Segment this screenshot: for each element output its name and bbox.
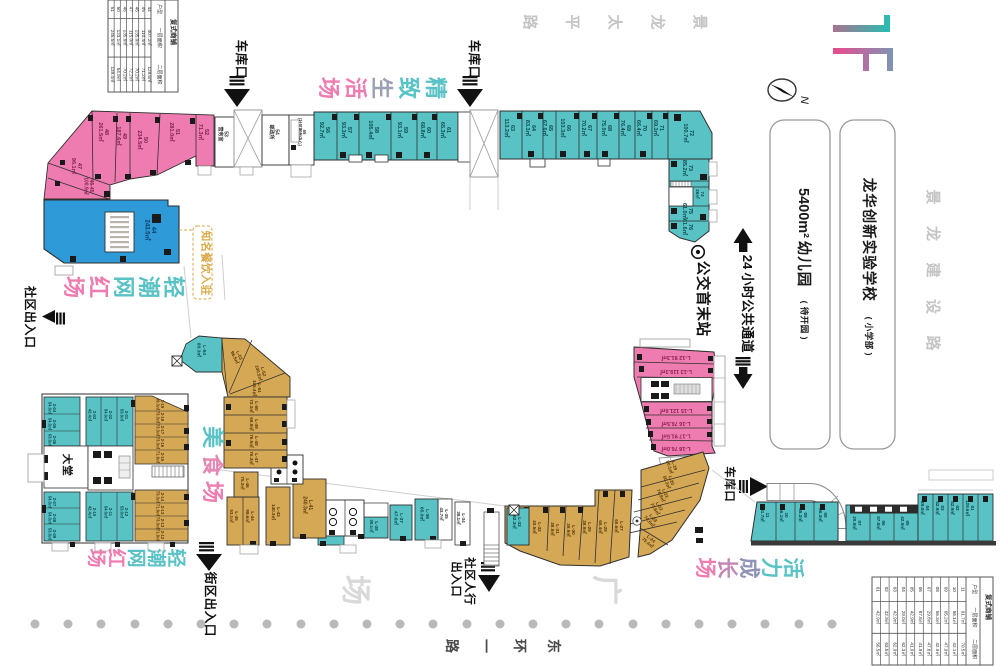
svg-text:场: 场	[85, 548, 107, 567]
svg-text:场: 场	[200, 481, 225, 503]
svg-text:行: 行	[463, 592, 477, 605]
svg-text:设: 设	[924, 299, 941, 314]
svg-text:62.3㎡: 62.3㎡	[901, 642, 907, 656]
svg-text:41.9㎡: 41.9㎡	[918, 642, 924, 656]
svg-text:42.9㎡: 42.9㎡	[875, 611, 881, 625]
svg-text:29.8㎡: 29.8㎡	[927, 611, 933, 625]
svg-text:70.2㎡: 70.2㎡	[122, 68, 128, 82]
svg-text:园: 园	[800, 325, 810, 334]
svg-text:网: 网	[125, 548, 146, 567]
svg-text:户型: 户型	[971, 584, 978, 594]
svg-text:123.1㎡: 123.1㎡	[116, 30, 122, 46]
svg-text:47.9㎡: 47.9㎡	[944, 642, 950, 656]
svg-text:54.9㎡: 54.9㎡	[116, 68, 122, 82]
svg-text:待: 待	[800, 306, 810, 316]
svg-text:区: 区	[203, 585, 217, 598]
svg-text:407.2㎡: 407.2㎡	[147, 30, 153, 46]
svg-text:29.0㎡: 29.0㎡	[901, 611, 907, 625]
svg-text:L-12 91.3㎡: L-12 91.3㎡	[661, 354, 691, 362]
svg-text:二层面积: 二层面积	[971, 639, 978, 659]
svg-text:社: 社	[463, 556, 477, 569]
svg-text:42.1㎡: 42.1㎡	[952, 642, 958, 656]
svg-text:07: 07	[927, 587, 932, 593]
svg-text:社: 社	[23, 285, 38, 298]
svg-text:11: 11	[961, 587, 966, 592]
svg-text:红: 红	[105, 548, 128, 567]
svg-text:街: 街	[203, 571, 218, 585]
svg-text:验: 验	[860, 255, 878, 270]
svg-text:): )	[800, 337, 810, 340]
svg-text:08: 08	[935, 587, 940, 593]
svg-text:龙: 龙	[924, 225, 942, 241]
svg-text:42.9㎡: 42.9㎡	[892, 611, 898, 625]
svg-text:区: 区	[463, 569, 476, 581]
svg-text:50: 50	[116, 7, 121, 13]
svg-text:新: 新	[860, 224, 878, 239]
svg-text:建: 建	[924, 262, 942, 278]
svg-text:47: 47	[129, 7, 134, 13]
svg-text:路: 路	[521, 14, 539, 30]
svg-text:口: 口	[450, 585, 463, 597]
svg-text:48: 48	[122, 7, 127, 13]
svg-text:实: 实	[860, 240, 878, 255]
svg-text:创: 创	[860, 208, 878, 224]
svg-text:入: 入	[23, 323, 37, 335]
svg-text:潮: 潮	[136, 276, 161, 298]
svg-text:45: 45	[141, 7, 146, 13]
svg-text:饮: 饮	[200, 262, 213, 274]
svg-text:美: 美	[200, 426, 225, 449]
svg-text:L-18 76.0㎡: L-18 76.0㎡	[661, 445, 691, 453]
svg-text:公: 公	[740, 299, 755, 312]
svg-text:幼: 幼	[795, 241, 813, 256]
svg-text:园: 园	[795, 272, 812, 287]
svg-text:驻: 驻	[200, 285, 213, 296]
svg-text:场: 场	[693, 558, 716, 579]
svg-text:44: 44	[147, 7, 152, 13]
svg-text:87.8㎡: 87.8㎡	[918, 611, 924, 625]
svg-text:复式商铺: 复式商铺	[170, 18, 179, 46]
svg-text:41.9㎡: 41.9㎡	[909, 642, 915, 656]
svg-text:生: 生	[369, 77, 394, 99]
svg-text:轻: 轻	[161, 276, 186, 298]
svg-text:平: 平	[564, 14, 581, 29]
svg-text:东: 东	[546, 639, 562, 653]
svg-text:129.6㎡: 129.6㎡	[147, 66, 153, 82]
svg-text:致: 致	[396, 77, 421, 100]
svg-text:入: 入	[203, 611, 217, 624]
svg-text:精: 精	[423, 77, 448, 99]
svg-text:人: 人	[463, 581, 477, 593]
svg-text:大: 大	[61, 454, 74, 465]
svg-text:一层面积: 一层面积	[971, 607, 978, 627]
svg-text:共: 共	[740, 313, 755, 326]
svg-text:小: 小	[740, 272, 755, 285]
svg-text:通: 通	[740, 326, 755, 339]
svg-text:出: 出	[450, 561, 464, 573]
svg-text:库: 库	[467, 53, 482, 66]
svg-text:(: (	[864, 317, 874, 320]
svg-text:轻: 轻	[165, 548, 188, 567]
svg-text:24: 24	[740, 255, 755, 270]
svg-text:网: 网	[111, 276, 136, 298]
svg-text:42.9㎡: 42.9㎡	[884, 611, 890, 625]
svg-text:91.7㎡: 91.7㎡	[961, 611, 967, 625]
svg-text:72.2㎡: 72.2㎡	[129, 68, 135, 82]
svg-text:L-13 119.3㎡: L-13 119.3㎡	[660, 368, 692, 376]
svg-text:时: 时	[740, 286, 755, 299]
svg-text:56.1㎡: 56.1㎡	[952, 611, 958, 625]
svg-text:太: 太	[606, 14, 624, 30]
svg-text:公: 公	[694, 261, 711, 276]
svg-text:场: 场	[338, 575, 371, 605]
svg-text:115.0㎡: 115.0㎡	[129, 30, 135, 46]
svg-text:知: 知	[200, 231, 213, 242]
svg-text:N: N	[798, 96, 810, 104]
svg-text:末: 末	[694, 306, 712, 321]
svg-text:小: 小	[864, 322, 874, 332]
svg-text:一: 一	[478, 639, 494, 653]
svg-text:46: 46	[135, 7, 140, 13]
svg-text:首: 首	[694, 291, 712, 306]
svg-text:01: 01	[875, 587, 880, 593]
svg-text:儿: 儿	[795, 255, 812, 271]
svg-text:校: 校	[860, 286, 878, 301]
svg-text:学: 学	[860, 271, 878, 286]
svg-text:龙: 龙	[860, 177, 878, 193]
svg-text:广: 广	[589, 575, 622, 605]
svg-text:出: 出	[23, 311, 38, 323]
svg-text:车: 车	[723, 466, 737, 478]
svg-text:名: 名	[200, 242, 213, 253]
svg-text:47.8㎡: 47.8㎡	[927, 642, 933, 656]
svg-text:63.5㎡: 63.5㎡	[884, 642, 890, 656]
svg-text:环: 环	[512, 639, 528, 653]
svg-text:139.4㎡: 139.4㎡	[110, 66, 116, 82]
svg-text:部: 部	[864, 341, 874, 350]
svg-text:10: 10	[952, 587, 957, 593]
svg-text:华: 华	[860, 193, 878, 208]
svg-text:L-16 76.5㎡: L-16 76.5㎡	[661, 420, 691, 428]
svg-text:道: 道	[740, 339, 755, 352]
svg-text:65.2㎡: 65.2㎡	[944, 611, 950, 625]
svg-text:活: 活	[781, 558, 804, 579]
svg-text:学: 学	[864, 332, 874, 341]
svg-text:135.8㎡: 135.8㎡	[122, 30, 128, 46]
svg-text:02: 02	[884, 587, 889, 593]
svg-text:库: 库	[234, 53, 249, 66]
svg-text:5400m²: 5400m²	[795, 188, 811, 238]
svg-text:堂: 堂	[61, 465, 74, 476]
svg-text:09: 09	[944, 587, 949, 593]
svg-text:车: 车	[467, 40, 482, 53]
svg-text:56.5㎡: 56.5㎡	[875, 642, 881, 656]
svg-text:交: 交	[694, 276, 712, 291]
svg-text:场: 场	[316, 77, 341, 99]
svg-text:餐: 餐	[200, 251, 213, 263]
svg-text:42.9㎡: 42.9㎡	[909, 611, 915, 625]
svg-text:51: 51	[110, 7, 115, 13]
svg-text:71.2㎡: 71.2㎡	[141, 68, 147, 82]
svg-text:二层面积: 二层面积	[156, 65, 163, 85]
svg-text:135.0㎡: 135.0㎡	[135, 30, 141, 46]
svg-text:红: 红	[86, 276, 111, 298]
svg-text:复式商铺: 复式商铺	[985, 593, 994, 621]
svg-text:46-45100.9㎡: 46-45100.9㎡	[83, 177, 95, 195]
svg-text:口: 口	[23, 336, 37, 348]
svg-text:户型: 户型	[156, 4, 163, 14]
svg-text:成: 成	[737, 558, 761, 579]
svg-text:70.5㎡: 70.5㎡	[961, 642, 967, 656]
svg-text:入: 入	[450, 573, 463, 585]
svg-text:潮: 潮	[145, 548, 167, 567]
svg-text:): )	[864, 353, 874, 356]
svg-text:110.4㎡: 110.4㎡	[141, 30, 147, 46]
svg-text:245.5㎡: 245.5㎡	[110, 30, 116, 46]
svg-text:口: 口	[203, 624, 217, 637]
svg-text:出: 出	[203, 598, 218, 611]
svg-text:05: 05	[909, 587, 914, 593]
svg-text:L-15 121.6㎡: L-15 121.6㎡	[659, 407, 692, 415]
svg-text:站: 站	[694, 322, 712, 337]
svg-text:(: (	[800, 301, 810, 304]
svg-text:L-17 91.5㎡: L-17 91.5㎡	[661, 433, 691, 441]
svg-text:路: 路	[924, 335, 942, 351]
svg-text:62.9㎡: 62.9㎡	[892, 642, 898, 656]
svg-text:入: 入	[200, 274, 212, 285]
svg-text:口: 口	[723, 490, 736, 502]
svg-text:车: 车	[234, 40, 249, 53]
svg-text:力: 力	[759, 558, 782, 579]
svg-text:龙: 龙	[649, 13, 667, 29]
svg-text:区: 区	[23, 298, 37, 310]
svg-text:场: 场	[61, 276, 86, 298]
svg-text:开: 开	[800, 316, 810, 325]
svg-text:景: 景	[691, 14, 709, 29]
svg-text:70.2㎡: 70.2㎡	[135, 68, 141, 82]
svg-text:03: 03	[892, 587, 897, 593]
svg-text:56.3㎡: 56.3㎡	[935, 611, 941, 625]
svg-text:食: 食	[200, 454, 225, 477]
svg-text:一层面积: 一层面积	[156, 28, 163, 48]
svg-text:景: 景	[924, 189, 942, 204]
svg-text:42.9㎡: 42.9㎡	[935, 642, 941, 656]
svg-text:活: 活	[343, 77, 368, 99]
svg-text:04: 04	[901, 587, 906, 593]
svg-text:06: 06	[918, 587, 923, 593]
svg-text:路: 路	[444, 639, 460, 654]
svg-text:长: 长	[715, 558, 738, 580]
